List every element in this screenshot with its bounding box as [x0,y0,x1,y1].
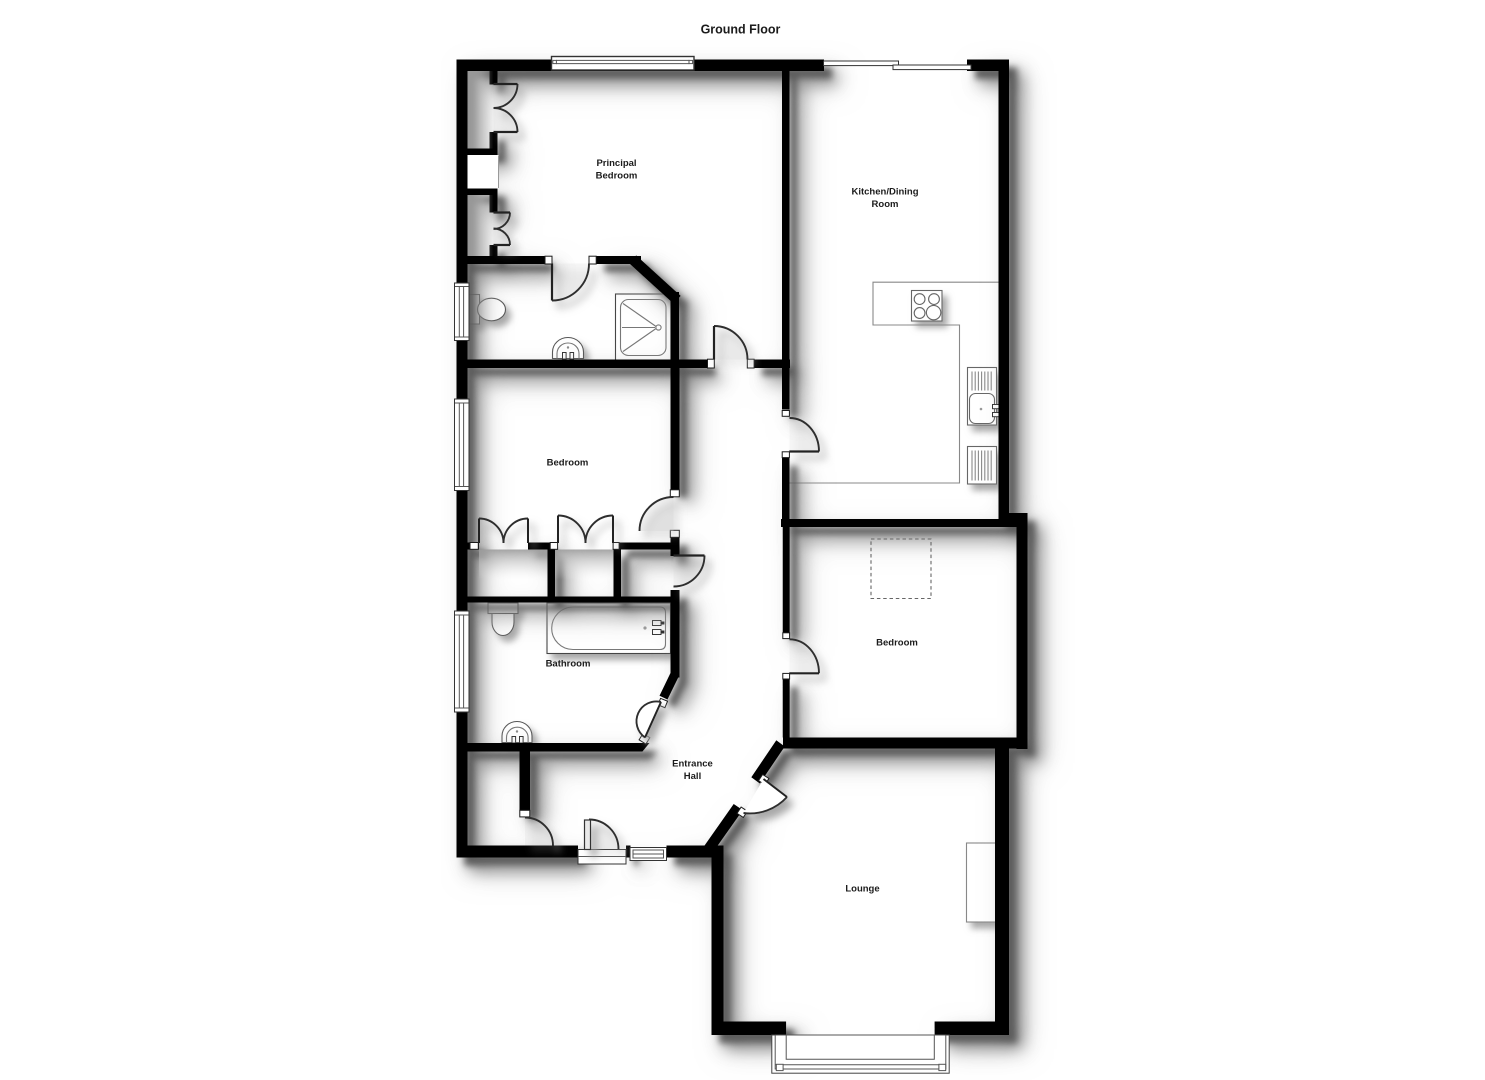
svg-text:Entrance: Entrance [672,759,713,770]
svg-text:Bathroom: Bathroom [546,659,591,670]
svg-text:Principal: Principal [596,158,636,169]
svg-text:Ground Floor: Ground Floor [701,23,781,37]
svg-text:Bedroom: Bedroom [596,171,638,182]
svg-text:Kitchen/Dining: Kitchen/Dining [851,187,918,198]
svg-text:Lounge: Lounge [845,884,879,895]
svg-text:Hall: Hall [684,771,701,782]
svg-text:Bedroom: Bedroom [547,458,589,469]
svg-text:Room: Room [872,199,899,210]
svg-text:Bedroom: Bedroom [876,638,918,649]
